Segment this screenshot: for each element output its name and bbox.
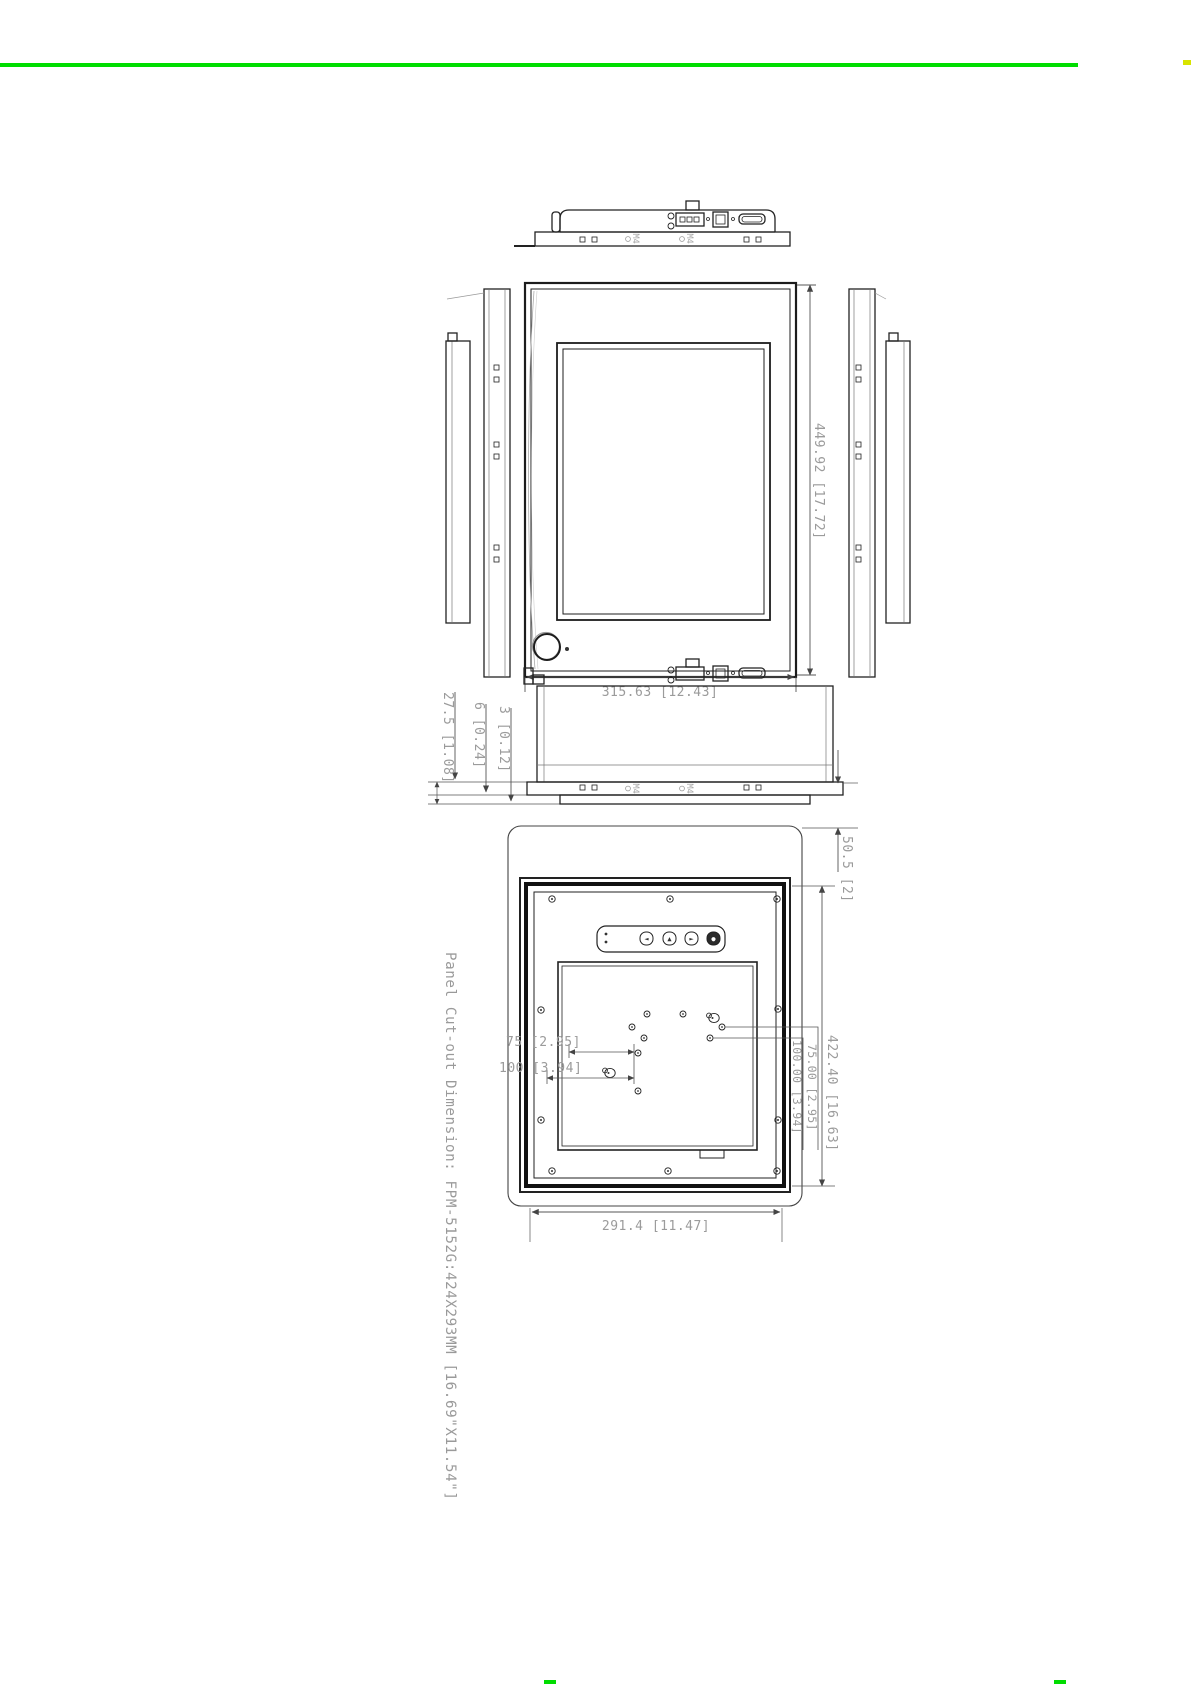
mount-bracket [886,341,910,623]
dim-vesa-v75-label: 75.00 [2.95] [805,1044,819,1131]
bottom-mark-right [1054,1680,1066,1684]
osd-up-icon: ▲ [667,935,672,943]
osd-button-strip [597,926,725,952]
chassis-body [537,686,833,782]
dim-front-height-label: 449.92 [17.72] [811,423,826,540]
dim-front-width-label: 315.63 [12.43] [602,685,719,700]
panel-profile [849,289,875,677]
dim-vesa-h100-label: 100 [3.94] [499,1061,582,1076]
usb-port [713,212,728,227]
mount-bracket [446,341,470,623]
edge-mark-right [1183,60,1191,65]
left-side-view [446,289,510,677]
screen-window [557,343,770,620]
rear-view [508,826,818,1206]
right-side-view [849,289,910,677]
manual-page: M4 M4 [0,0,1191,1685]
top-flange [535,232,790,246]
panel-profile [484,289,510,677]
dim-cutout-width-label: 291.4 [11.47] [602,1219,710,1234]
vesa-plate [558,962,757,1158]
osd-right-icon: ► [689,935,694,943]
dim-depth-total-label: 27.5 [1.08] [440,692,455,784]
power-led [565,647,569,651]
dim-vesa-h75-label: 75 [2.95] [506,1035,581,1050]
dim-mount-depth-label: 50.5 [2] [839,836,854,903]
connector-pins [686,201,699,210]
page-rules [0,60,1191,1684]
dim-vesa-v100-label: 100.00 [3.94] [790,1040,804,1134]
m4-label: M4 [684,784,694,794]
top-view [514,201,790,246]
video-connector [739,214,765,224]
dim-glass-label: 3 [0.12] [496,706,511,773]
m4-label: M4 [630,234,640,244]
osd-left-icon: ◄ [644,935,649,943]
side-view-bottom [524,659,843,804]
vesa-holes [603,1011,725,1094]
bottom-mark-left [544,1680,556,1684]
front-view [525,283,796,677]
osd-knob [534,634,560,660]
technical-drawing: M4 M4 [0,0,1191,1685]
top-green-rule [0,63,1078,67]
dim-bezel-label: 6 [0.24] [471,702,486,769]
drawing-caption: Panel Cut-out Dimension: FPM-5152G:424X2… [442,952,458,1501]
dim-cutout-height-label: 422.40 [16.63] [824,1035,839,1152]
m4-label: M4 [630,784,640,794]
glass-face [560,795,810,804]
m4-label: M4 [684,234,694,244]
